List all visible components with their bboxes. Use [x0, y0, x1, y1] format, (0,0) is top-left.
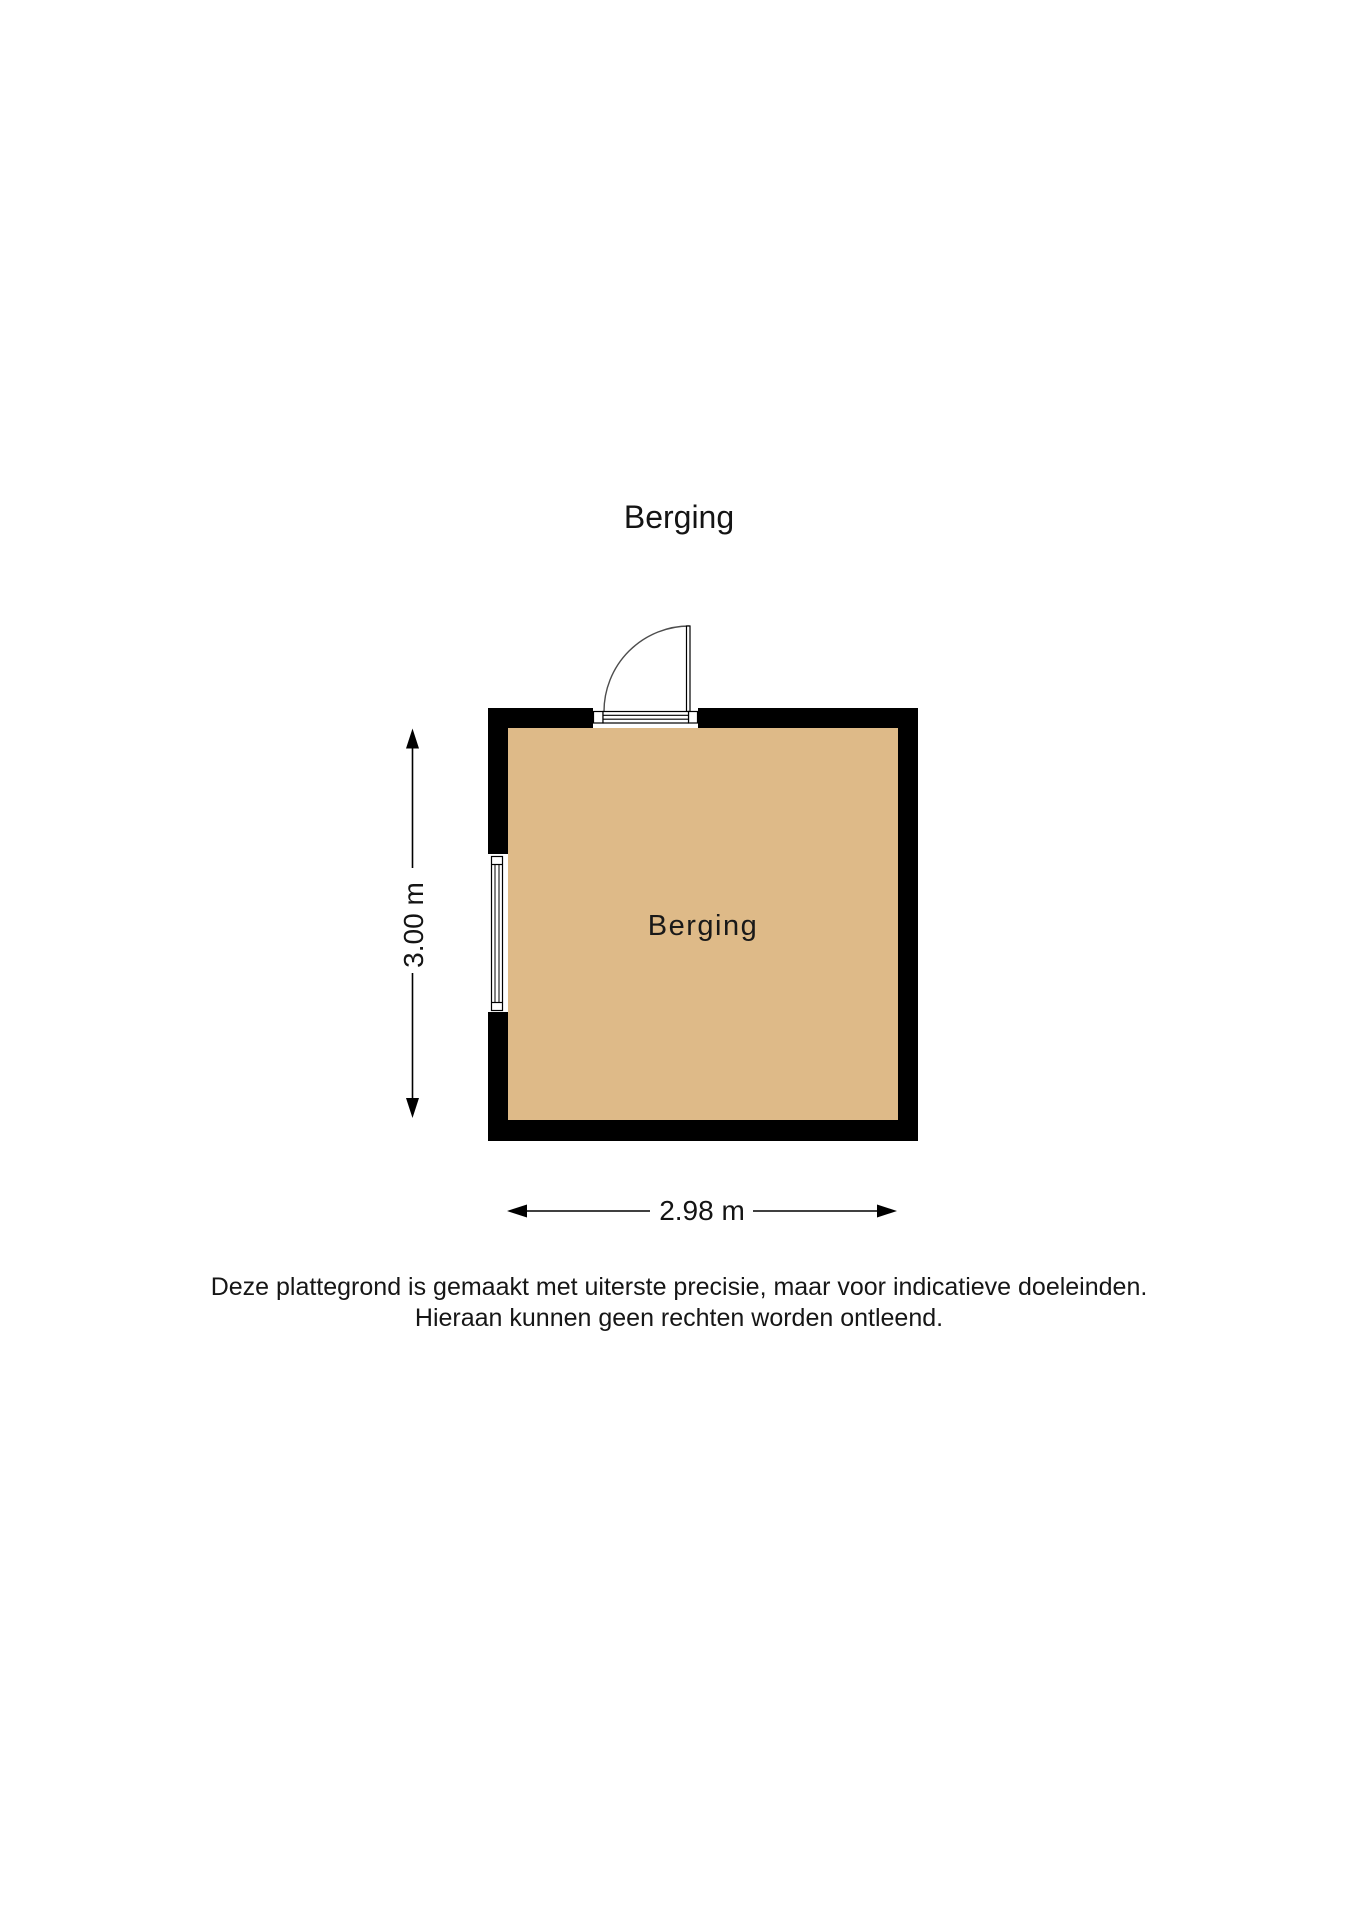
floorplan-page: Berging: [0, 0, 1358, 1920]
door-jamb-right: [689, 712, 698, 724]
wall-top-right-segment: [698, 708, 918, 728]
disclaimer-line-2: Hieraan kunnen geen rechten worden ontle…: [0, 1303, 1358, 1334]
disclaimer-line-1: Deze plattegrond is gemaakt met uiterste…: [0, 1272, 1358, 1303]
room-label: Berging: [553, 910, 853, 943]
dimension-height-label: 3.00 m: [399, 855, 429, 995]
disclaimer: Deze plattegrond is gemaakt met uiterste…: [0, 1272, 1358, 1334]
door-swing-arc: [604, 626, 690, 712]
dim-v-arrow-top: [406, 729, 419, 749]
door-threshold: [603, 712, 689, 724]
door: [594, 626, 698, 723]
dimension-width-label: 2.98 m: [632, 1196, 772, 1226]
door-jamb-left: [594, 712, 604, 724]
wall-right: [898, 708, 918, 1141]
dim-v-arrow-bottom: [406, 1098, 419, 1118]
wall-left-upper-segment: [488, 708, 508, 854]
floorplan-drawing: [0, 0, 1358, 1920]
wall-bottom: [488, 1120, 918, 1141]
window-frame: [492, 857, 503, 1011]
dim-h-arrow-right: [877, 1205, 897, 1218]
wall-left-lower-segment: [488, 1012, 508, 1141]
door-leaf: [687, 626, 691, 712]
window: [492, 857, 503, 1011]
dim-h-arrow-left: [507, 1205, 527, 1218]
